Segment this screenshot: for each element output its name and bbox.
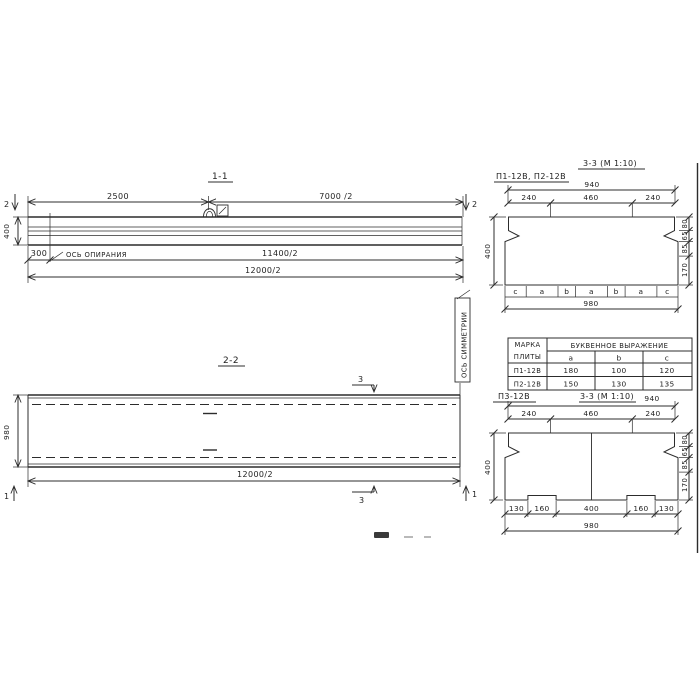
dim-chain-top: 2500 7000 /2 bbox=[28, 192, 463, 217]
letter-c2: c bbox=[665, 287, 669, 296]
table-col-mark-line2: ПЛИТЫ bbox=[514, 353, 541, 361]
dim-label-2500: 2500 bbox=[107, 192, 129, 201]
symmetry-axis: ОСЬ СИММЕТРИИ bbox=[455, 290, 470, 395]
dim-label-980: 980 bbox=[2, 425, 11, 440]
dim-label-65: 65 bbox=[681, 447, 689, 456]
section-3-3-top-view: 3-3 (М 1:10) П1-12В, П2-12В 940 240 460 … bbox=[483, 159, 693, 313]
dim-label-170: 170 bbox=[681, 263, 689, 277]
dim-980-left: 980 bbox=[2, 395, 28, 467]
dim-row-240-460-240: 240 460 240 bbox=[505, 409, 679, 433]
table-row: П2-12В 150 130 135 bbox=[514, 380, 675, 389]
parameters-table: МАРКА ПЛИТЫ БУКВЕННОЕ ВЫРАЖЕНИЕ a b c П1… bbox=[508, 338, 692, 390]
dim-label-85: 85 bbox=[681, 460, 689, 469]
dim-label-460: 460 bbox=[583, 193, 598, 202]
dim-label-460: 460 bbox=[583, 409, 598, 418]
dim-label-240-r: 240 bbox=[645, 409, 660, 418]
dim-label-160-l: 160 bbox=[534, 504, 549, 513]
dim-980: 980 bbox=[502, 297, 682, 313]
slab-mark-label: П3-12В bbox=[498, 392, 530, 401]
dim-label-12000-2: 12000/2 bbox=[237, 470, 273, 479]
dim-400-left: 400 bbox=[483, 430, 506, 504]
dim-label-980: 980 bbox=[583, 299, 598, 308]
dim-label-170: 170 bbox=[681, 478, 689, 492]
dim-label-85: 85 bbox=[681, 244, 689, 253]
dim-label-940: 940 bbox=[584, 180, 599, 189]
section-1-1-view: 1-1 2 2 2500 7000 /2 bbox=[2, 172, 478, 283]
dim-label-80: 80 bbox=[681, 219, 689, 228]
dim-label-80: 80 bbox=[681, 435, 689, 444]
cut-mark-3-top: 3 bbox=[358, 375, 364, 384]
slab-plan bbox=[28, 395, 460, 467]
lifting-loop bbox=[204, 205, 229, 217]
letter-a2: a bbox=[589, 287, 594, 296]
table-col-a: a bbox=[569, 354, 574, 363]
dim-row-240-460-240: 240 460 240 bbox=[505, 193, 679, 217]
slab-elevation bbox=[28, 217, 462, 245]
section-2-2-title: 2-2 bbox=[223, 356, 239, 366]
dim-label-11400-2: 11400/2 bbox=[262, 249, 298, 258]
section-3-3-title: 3-3 (М 1:10) bbox=[580, 392, 634, 401]
section-3-3-bottom-view: П3-12В 3-3 (М 1:10) 940 240 460 240 bbox=[483, 392, 693, 535]
row2-mark: П2-12В bbox=[514, 381, 542, 389]
dim-12000-overall: 12000/2 bbox=[28, 266, 463, 283]
row1-c: 120 bbox=[659, 366, 674, 375]
dim-label-400-c: 400 bbox=[584, 504, 599, 513]
support-axis-label: ОСЬ ОПИРАНИЯ bbox=[66, 251, 127, 259]
letter-b1: b bbox=[564, 287, 569, 296]
drawing-sheet: 1-1 2 2 2500 7000 /2 bbox=[0, 0, 700, 700]
dim-right-stack: 80 65 85 170 bbox=[676, 214, 693, 289]
support-axis-dims: 300 ОСЬ ОПИРАНИЯ 11400/2 bbox=[25, 213, 464, 266]
table-col-b: b bbox=[616, 354, 621, 363]
table-col-mark-line1: МАРКА bbox=[514, 341, 540, 349]
dim-label-300: 300 bbox=[31, 249, 47, 258]
dim-label-160-r: 160 bbox=[633, 504, 648, 513]
dim-label-400: 400 bbox=[2, 224, 11, 239]
row2-a: 150 bbox=[563, 380, 578, 389]
slab-marks-label: П1-12В, П2-12В bbox=[496, 172, 566, 181]
dim-label-980: 980 bbox=[584, 521, 599, 530]
dim-label-240-r: 240 bbox=[645, 193, 660, 202]
table-col-c: c bbox=[665, 354, 669, 363]
symmetry-axis-label: ОСЬ СИММЕТРИИ bbox=[461, 312, 469, 378]
cut-mark-2-right: 2 bbox=[472, 200, 478, 209]
cut-mark-1-left: 1 bbox=[4, 492, 10, 501]
table-row: П1-12В 180 100 120 bbox=[514, 366, 675, 375]
dim-label-400: 400 bbox=[483, 244, 492, 259]
letters-row: c a b a b a c bbox=[505, 286, 678, 297]
dim-right-stack: 80 65 85 170 bbox=[676, 430, 693, 504]
row1-mark: П1-12В bbox=[514, 367, 542, 375]
cut-mark-1-right: 1 bbox=[472, 490, 478, 499]
table-header-expression: БУКВЕННОЕ ВЫРАЖЕНИЕ bbox=[571, 342, 669, 350]
dim-12000-bottom: 12000/2 bbox=[28, 467, 460, 487]
dim-400-left: 400 bbox=[483, 214, 506, 289]
cut-mark-2-left: 2 bbox=[4, 200, 10, 209]
row1-a: 180 bbox=[563, 366, 578, 375]
scan-artifacts bbox=[374, 532, 431, 538]
technical-drawing: 1-1 2 2 2500 7000 /2 bbox=[0, 0, 700, 700]
letter-a1: a bbox=[540, 287, 545, 296]
dim-label-65: 65 bbox=[681, 231, 689, 240]
dim-label-400: 400 bbox=[483, 460, 492, 475]
letter-a3: a bbox=[639, 287, 644, 296]
dim-400-left: 400 bbox=[2, 217, 28, 245]
section-2-2-view: 2-2 3 980 bbox=[2, 290, 478, 505]
row1-b: 100 bbox=[611, 366, 626, 375]
letter-c1: c bbox=[513, 287, 517, 296]
cut-mark-3-bottom: 3 bbox=[359, 496, 365, 505]
section-1-1-title: 1-1 bbox=[212, 172, 228, 182]
dim-label-240-l: 240 bbox=[521, 193, 536, 202]
dim-label-130-r: 130 bbox=[659, 504, 674, 513]
dim-label-12000-2: 12000/2 bbox=[245, 266, 281, 275]
letter-b2: b bbox=[614, 287, 619, 296]
dim-row-bottom: 130 160 400 160 130 bbox=[502, 501, 682, 518]
dim-label-240-l: 240 bbox=[521, 409, 536, 418]
dim-label-7000-2: 7000 /2 bbox=[319, 192, 353, 201]
section-3-3-title: 3-3 (М 1:10) bbox=[583, 159, 637, 168]
row2-b: 130 bbox=[611, 380, 626, 389]
dim-label-130-l: 130 bbox=[509, 504, 524, 513]
dim-980: 980 bbox=[502, 517, 682, 535]
cross-section-hatched bbox=[505, 217, 678, 285]
dim-label-940: 940 bbox=[644, 394, 659, 403]
row2-c: 135 bbox=[659, 380, 674, 389]
